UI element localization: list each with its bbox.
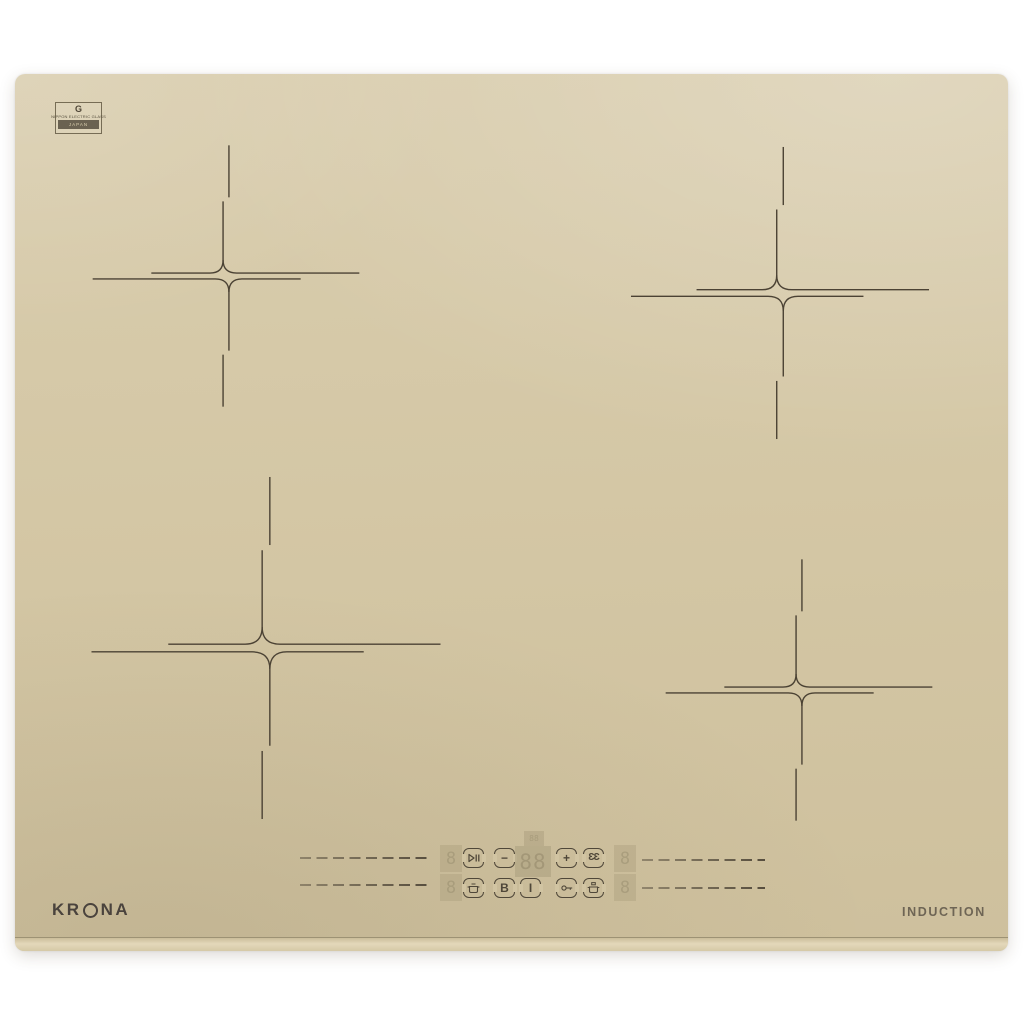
boost-button[interactable]: B [494, 878, 515, 898]
timer-label: ƐƐ [588, 853, 599, 863]
power-slider-right-upper[interactable] [642, 859, 765, 861]
auto-program-button[interactable] [583, 878, 604, 898]
brand-logo-ring-icon [83, 903, 98, 918]
induction-label: INDUCTION [902, 905, 986, 919]
touch-control-panel: 8 8 − 88 88 + ƐƐ [295, 830, 785, 910]
cooking-zone-rear-right [628, 141, 932, 445]
plus-button[interactable]: + [556, 848, 577, 868]
brand-logo: KR NA [52, 901, 130, 919]
power-on-off-button[interactable]: I [520, 878, 541, 898]
zone-display-right-upper: 8 [614, 845, 636, 872]
cooking-zone-front-left [88, 470, 444, 826]
child-lock-key-icon [561, 884, 573, 892]
child-lock-button[interactable] [556, 878, 577, 898]
keep-warm-button[interactable] [463, 878, 484, 898]
power-slider-left-upper[interactable] [300, 857, 430, 859]
minus-button[interactable]: − [494, 848, 515, 868]
power-slider-left-lower[interactable] [300, 884, 430, 886]
cooktop-glass-surface: G NIPPON ELECTRIC GLASS JAPAN [15, 74, 1008, 951]
zone-display-right-lower: 8 [614, 874, 636, 901]
timer-aux-display: 88 [524, 831, 544, 846]
plus-label: + [563, 852, 570, 864]
boost-label: B [500, 882, 509, 894]
maker-logo-glyph: G [75, 104, 82, 114]
play-pause-button[interactable] [463, 848, 484, 868]
zone-display-left-lower: 8 [440, 874, 462, 901]
glass-front-bevel [15, 937, 1008, 951]
cooking-zone-front-right [663, 554, 935, 826]
auto-program-pot-icon [587, 882, 600, 894]
brand-logo-prefix: KR [52, 900, 82, 920]
cooking-zone-rear-left [90, 140, 362, 412]
brand-logo-suffix: NA [101, 900, 131, 920]
main-power-display: 88 [515, 846, 551, 877]
maker-badge: G NIPPON ELECTRIC GLASS JAPAN [55, 102, 102, 134]
maker-country-band: JAPAN [58, 120, 99, 129]
timer-button[interactable]: ƐƐ [583, 848, 604, 868]
play-pause-icon [468, 853, 480, 863]
zone-display-left-upper: 8 [440, 845, 462, 872]
maker-name-line: NIPPON ELECTRIC GLASS [51, 114, 106, 119]
power-label: I [529, 882, 532, 894]
keep-warm-pot-icon [467, 883, 480, 894]
minus-label: − [501, 852, 508, 864]
power-slider-right-lower[interactable] [642, 887, 765, 889]
